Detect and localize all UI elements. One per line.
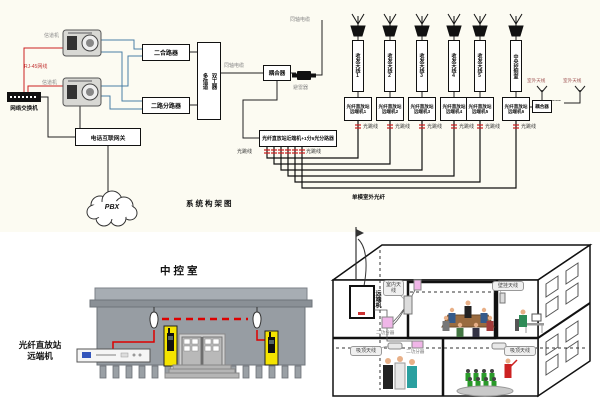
pbx-label: PBX [96,204,128,211]
remote-unit-box-4: 光纤直放站远端机4 [440,97,468,121]
antenna-unit-box-1: 收发天线1 [352,40,364,92]
splitter-box: 二路分路器 [142,97,190,114]
remote-unit-box-6: 光纤直放站远端机6 [502,97,530,121]
radio-holder-right [265,331,278,365]
fiber-jumper-label: 光跳线 [521,123,536,130]
ceiling-antenna-icons [351,14,523,36]
rj45-cable-label: RJ-45网线 [24,63,47,70]
outdoor-antenna-label-1: 室外天线 [527,78,545,84]
duplexer-label-col2: 双工器 [210,73,218,90]
remote-unit-box-5: 光纤直放站远端机5 [466,97,494,121]
duplexer-box: 多信道 双工器 [197,42,221,120]
channel-unit-2-icon [63,78,101,106]
rf-cables [101,40,142,109]
antenna-unit-label-6: 中央控制室 [513,54,520,79]
rack-label-line1: 光纤直放站 [8,340,72,351]
outdoor-antenna-icons [537,86,585,100]
indoor-antenna-callout: 室内天线 [383,280,404,296]
antenna-unit-label-2: 收发天线2 [387,53,394,79]
coax-cable-label: 同轴电缆 [224,62,244,69]
channel-unit-1-label: 信道机 [44,32,59,39]
antenna-unit-box-4: 收发天线4 [448,40,460,92]
coax-cable-label-top: 同轴电缆 [290,16,310,23]
antenna-unit-label-5: 收发天线5 [477,53,484,79]
rack-label-line2: 远端机 [8,351,72,362]
wall-remote-unit-label: 远端机 [373,290,382,308]
wall-antenna-callout: 壁挂天线 [492,281,524,291]
remote-unit-box-2: 光纤直放站远端机2 [376,97,404,121]
antenna-unit-box-3: 收发天线3 [416,40,428,92]
remote-unit-box-3: 光纤直放站远端机3 [408,97,436,121]
antenna-unit-label-1: 收发天线1 [355,53,362,79]
screenshot-root: 信道机 信道机 网络交换机 RJ-45网线 二合路器 二路分路器 多信道 双工器… [0,0,600,400]
radio-holder-left [164,326,177,366]
switch-icon [7,92,41,102]
fiber-jumper-label: 光跳线 [427,123,442,130]
arrester-label: 避雷器 [293,84,308,91]
outdoor-antenna-label-2: 室外天线 [563,78,581,84]
outdoor-fiber-label: 单模室外光纤 [352,193,385,201]
splitter-label-1: 二功分器 [376,330,394,336]
ceiling-antenna-callout-right: 吸顶天线 [504,346,536,356]
lobby-people [383,356,417,389]
antenna-unit-box-5: 收发天线5 [474,40,486,92]
fiber-jumper-label: 光跳线 [306,148,321,155]
gateway-box: 电话互联网关 [75,128,141,146]
channel-unit-2-label: 信道机 [42,79,57,86]
antenna-unit-box-6: 中央控制室 [510,40,522,92]
fiber-jumper-label: 光跳线 [485,123,500,130]
fiber-jumper-label: 光跳线 [459,123,474,130]
ceiling-antenna-callout-left: 吸顶天线 [350,346,382,356]
wall-remote-unit [350,286,374,318]
switch-label: 网络交换机 [0,104,48,112]
splitter-label-2: 二功分器 [406,349,424,355]
ellipsis-dots: …… [549,97,561,103]
channel-unit-1-icon [63,30,101,56]
antenna-feeders [358,36,516,97]
rack-label: 光纤直放站 远端机 [8,340,72,361]
near-end-unit-box: 光纤直放站近端机+1分6光分路器 [259,130,337,147]
fiber-jumper-label: 光跳线 [363,123,378,130]
repeater-rack [77,349,150,362]
diagram-title: 系统构架图 [186,198,234,209]
combiner-box: 二合路器 [142,44,190,61]
building-isometric-drawing [320,215,600,400]
fiber-jumper-label: 光跳线 [395,123,410,130]
antenna-unit-label-4: 收发天线4 [451,53,458,79]
coupler-box: 耦合器 [263,65,291,81]
control-room-title: 中控室 [160,263,201,278]
remote-unit-box-1: 光纤直放站远端机1 [344,97,372,121]
arrester-icon [292,71,316,80]
antenna-unit-box-2: 收发天线2 [384,40,396,92]
fiber-jumper-label: 光跳线 [237,148,252,155]
duplexer-label-col1: 多信道 [201,73,209,90]
antenna-unit-label-3: 收发天线3 [419,53,426,79]
